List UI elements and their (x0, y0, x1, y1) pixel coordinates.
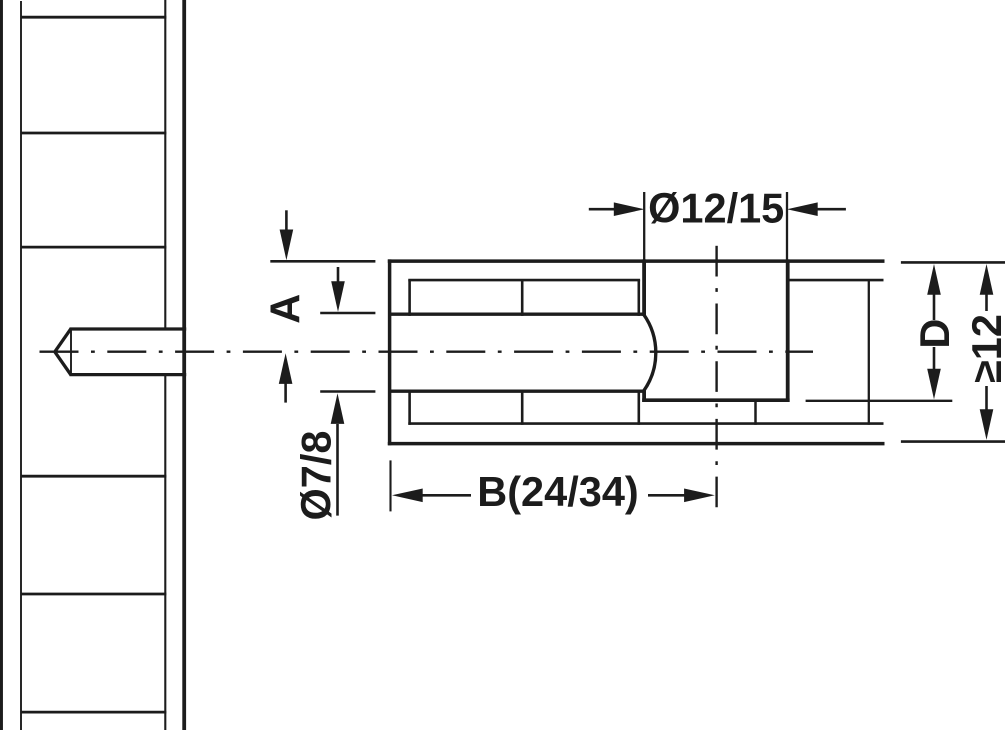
svg-text:D: D (911, 319, 958, 349)
svg-text:B(24/34): B(24/34) (477, 468, 638, 515)
svg-text:≥12: ≥12 (963, 314, 1005, 383)
svg-text:Ø7/8: Ø7/8 (293, 431, 340, 521)
svg-text:Ø12/15: Ø12/15 (648, 185, 784, 232)
svg-text:A: A (261, 294, 308, 324)
